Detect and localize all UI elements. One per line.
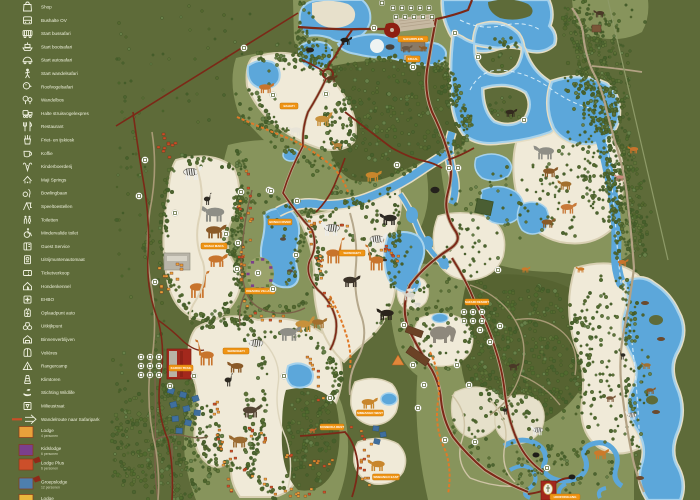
svg-text:Kidslodge: Kidslodge (41, 446, 62, 451)
svg-text:Start bussafari: Start bussafari (41, 31, 71, 36)
svg-text:Uitrijmuntenautomaat: Uitrijmuntenautomaat (41, 257, 85, 262)
svg-text:SERENGETI: SERENGETI (227, 349, 245, 353)
svg-text:Uitkijkpunt: Uitkijkpunt (41, 324, 63, 329)
svg-text:Bushalte OV: Bushalte OV (41, 18, 68, 23)
svg-text:Volières: Volières (41, 350, 58, 355)
svg-text:BAHATI: BAHATI (283, 104, 294, 108)
svg-text:Mindervalide toilet: Mindervalide toilet (41, 231, 79, 236)
svg-text:KRAAL: KRAAL (408, 57, 419, 61)
svg-text:Groepslodge: Groepslodge (41, 480, 68, 485)
svg-text:MASAI MARA: MASAI MARA (204, 244, 224, 248)
svg-text:Binnenverblijven: Binnenverblijven (41, 337, 75, 342)
svg-text:Start autosafari: Start autosafari (41, 58, 72, 63)
svg-text:Wandelroute naar Safaripark: Wandelroute naar Safaripark (41, 417, 100, 422)
svg-text:SAFARIPLEIN: SAFARIPLEIN (403, 37, 423, 41)
svg-text:SIMBANGO WEST: SIMBANGO WEST (357, 411, 383, 415)
svg-text:Lodge: Lodge (41, 496, 54, 500)
svg-text:Stichting Wildlife: Stichting Wildlife (41, 390, 75, 395)
svg-text:Lodge: Lodge (41, 428, 54, 433)
svg-text:SIMBANGO EAST: SIMBANGO EAST (373, 475, 399, 479)
svg-text:Wandelbos: Wandelbos (41, 98, 65, 103)
svg-text:Speeltoestellen: Speeltoestellen (41, 204, 73, 209)
svg-text:Guest Service: Guest Service (41, 244, 70, 249)
svg-text:Ticketverkoop: Ticketverkoop (41, 271, 70, 276)
svg-text:Maji Springs: Maji Springs (41, 177, 67, 182)
svg-text:Koffie: Koffie (41, 151, 53, 156)
svg-text:4 personen: 4 personen (41, 434, 58, 438)
svg-text:Restaurant: Restaurant (41, 124, 64, 129)
svg-text:Klimtoren: Klimtoren (41, 377, 61, 382)
svg-text:Rangercamp: Rangercamp (41, 364, 68, 369)
svg-text:HOOFDINGANG: HOOFDINGANG (554, 495, 577, 499)
svg-text:Kinderboerderij: Kinderboerderij (41, 164, 72, 169)
svg-text:KAROO TRAIL: KAROO TRAIL (171, 366, 192, 370)
svg-text:Lodge Plus: Lodge Plus (41, 461, 65, 466)
svg-text:KUMBUKA REST: KUMBUKA REST (320, 425, 344, 429)
svg-text:Shop: Shop (41, 5, 52, 10)
svg-text:Toiletten: Toiletten (41, 217, 59, 222)
svg-text:Hondenkennel: Hondenkennel (41, 284, 71, 289)
svg-text:Friet- en ijskiosk: Friet- en ijskiosk (41, 138, 75, 143)
svg-text:Bowlingbaan: Bowlingbaan (41, 191, 68, 196)
svg-text:Start bootsafari: Start bootsafari (41, 44, 72, 49)
svg-text:Start wandelsafari: Start wandelsafari (41, 71, 78, 76)
svg-text:Roofvogelsafari: Roofvogelsafari (41, 84, 73, 89)
svg-text:Oplaadpunt auto: Oplaadpunt auto (41, 310, 75, 315)
svg-text:12 personen: 12 personen (41, 486, 60, 490)
svg-text:6 personen: 6 personen (41, 467, 58, 471)
svg-text:SAFARI RESORT: SAFARI RESORT (465, 300, 490, 304)
svg-text:EHBO: EHBO (41, 297, 54, 302)
svg-text:Milieustraat: Milieustraat (41, 404, 65, 409)
svg-text:Halte struisvogelexpres: Halte struisvogelexpres (41, 111, 89, 116)
svg-text:BONGO RIVER: BONGO RIVER (269, 220, 291, 224)
svg-text:SERENGETI: SERENGETI (343, 251, 361, 255)
svg-text:6 personen: 6 personen (41, 452, 58, 456)
